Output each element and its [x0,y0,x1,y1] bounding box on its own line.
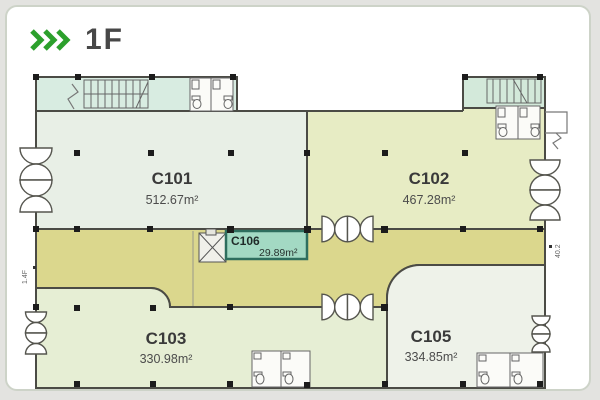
unit-c101-area: 512.67m² [146,193,199,207]
unit-c102-area: 467.28m² [403,193,456,207]
unit-c103-area: 330.98m² [140,352,193,366]
unit-c106-region[interactable]: C106 29.89m² [226,231,307,259]
svg-text:40.2: 40.2 [555,244,562,258]
restroom-icon [252,351,310,387]
restroom-icon [190,78,233,111]
floor-plan: C106 29.89m² C101 512.67m² C102 467.28m²… [0,0,600,400]
svg-text:1.4F: 1.4F [22,270,29,284]
unit-c101-label: C101 [152,169,193,188]
unit-c105-label: C105 [411,327,452,346]
double-door-icon [530,160,560,220]
restroom-icon [477,353,543,387]
wall-recess [545,112,567,149]
unit-c106-area: 29.89m² [259,247,298,259]
unit-c103-label: C103 [146,329,187,348]
unit-c105-area: 334.85m² [405,350,458,364]
restroom-icon [496,106,540,139]
dimension-annotation: 40.2 [549,244,562,258]
double-door-icon [26,312,47,354]
double-door-icon [20,148,52,212]
double-door-icon [322,294,373,320]
double-door-icon [322,216,373,242]
elevator-icon [199,229,226,262]
double-door-icon [532,316,550,352]
unit-c102-label: C102 [409,169,450,188]
dimension-annotation: 1.4F [22,266,36,284]
unit-c106-label: C106 [231,234,260,248]
